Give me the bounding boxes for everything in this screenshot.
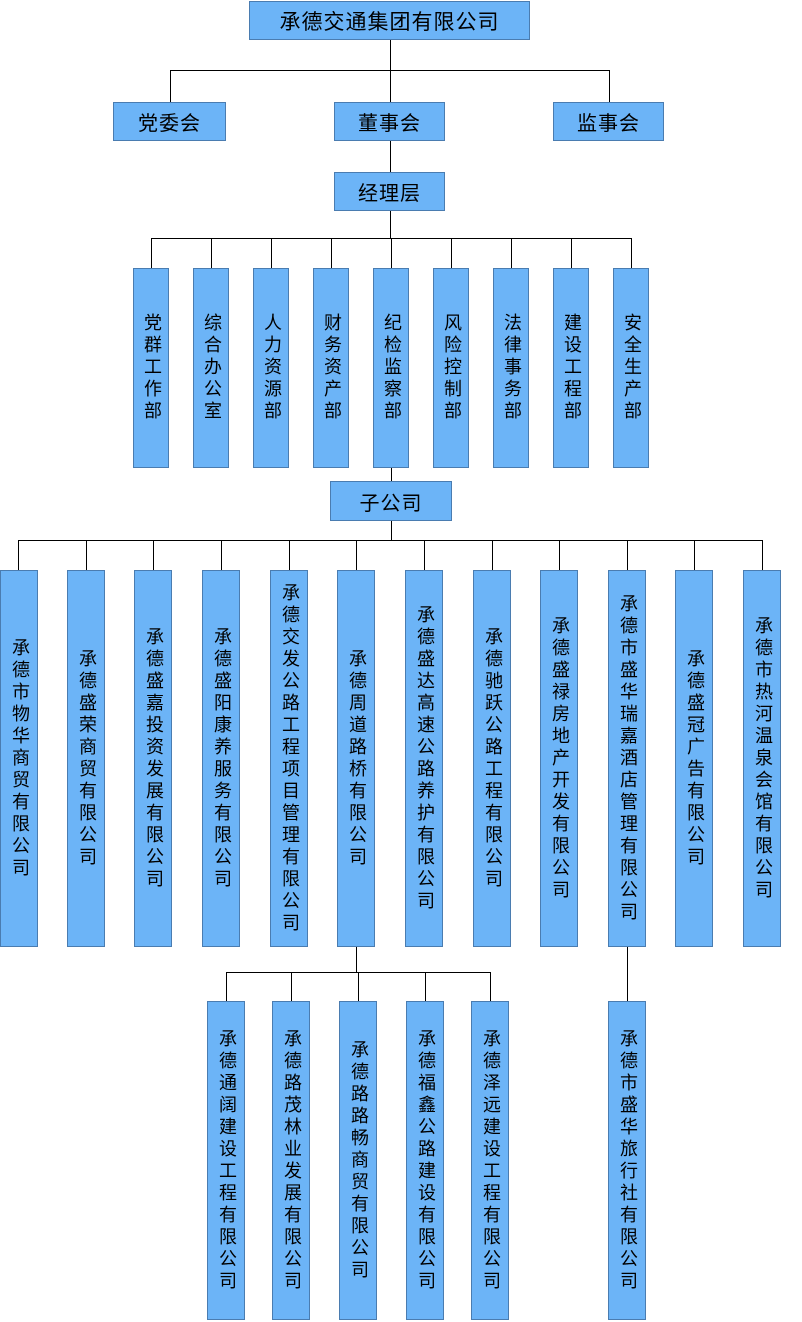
node-party-committee: 党委会 [113, 102, 226, 141]
node-child-luluchang: 承德路路畅商贸有限公司 [339, 1001, 377, 1320]
subsidiary-label: 承德盛嘉投资发展有限公司 [144, 627, 162, 891]
subsidiary-label: 承德盛达高速公路养护有限公司 [415, 605, 433, 913]
subsidiary-label: 承德盛冠广告有限公司 [685, 649, 703, 869]
dept-label: 建设工程部 [562, 313, 580, 423]
node-child-fuxin: 承德福鑫公路建设有限公司 [406, 1001, 444, 1320]
node-subsidiary-jiaofa: 承德交发公路工程项目管理有限公司 [270, 570, 308, 947]
node-subsidiary-shenghua-hotel: 承德市盛华瑞嘉酒店管理有限公司 [608, 570, 646, 947]
node-dept-legal: 法律事务部 [493, 268, 529, 468]
connector-to-subsidiaries-label [391, 468, 392, 481]
connector-dept-stub [211, 238, 212, 268]
connector-management-down [390, 211, 391, 238]
subsidiaries-label-text: 子公司 [360, 487, 423, 516]
node-root-label: 承德交通集团有限公司 [280, 6, 500, 36]
node-root: 承德交通集团有限公司 [249, 1, 530, 40]
node-subsidiary-wuhua: 承德市物华商贸有限公司 [0, 570, 38, 947]
node-subsidiary-shenglu: 承德盛禄房地产开发有限公司 [540, 570, 578, 947]
connector-sub-stub [289, 540, 290, 570]
node-subsidiary-shengyang: 承德盛阳康养服务有限公司 [202, 570, 240, 947]
node-management: 经理层 [334, 172, 445, 211]
node-subsidiary-rehe: 承德市热河温泉会馆有限公司 [743, 570, 781, 947]
node-dept-general-office: 综合办公室 [193, 268, 229, 468]
node-subsidiary-shengjia: 承德盛嘉投资发展有限公司 [134, 570, 172, 947]
connector-bottom-stub [425, 972, 426, 1001]
connector-sub-stub [221, 540, 222, 570]
node-dept-risk-control: 风险控制部 [433, 268, 469, 468]
node-subsidiary-chiyue: 承德驰跃公路工程有限公司 [473, 570, 511, 947]
connector-zhoudao-down [356, 947, 357, 972]
node-dept-safety: 安全生产部 [613, 268, 649, 468]
child-label: 承德福鑫公路建设有限公司 [416, 1029, 434, 1293]
connector-bottom-stub [490, 972, 491, 1001]
connector-sub-stub [762, 540, 763, 570]
node-subsidiaries-label: 子公司 [330, 481, 452, 521]
connector-sub-stub [627, 540, 628, 570]
connector-sub-stub [18, 540, 19, 570]
connector-bottom-stub [358, 972, 359, 1001]
connector-sub-stub [86, 540, 87, 570]
connector-dept-stub [391, 238, 392, 268]
connector-sub-stub [559, 540, 560, 570]
connector-sub-stub [694, 540, 695, 570]
connector-subsidiaries-rail [18, 540, 762, 541]
dept-label: 法律事务部 [502, 313, 520, 423]
node-dept-discipline: 纪检监察部 [373, 268, 409, 468]
connector-sub-stub [492, 540, 493, 570]
org-chart: 承德交通集团有限公司 党委会 董事会 监事会 经理层 党群工作部 综合办公室 人… [0, 0, 802, 1322]
connector-sub-stub [153, 540, 154, 570]
child-label: 承德路路畅商贸有限公司 [349, 1040, 367, 1282]
subsidiary-label: 承德驰跃公路工程有限公司 [483, 627, 501, 891]
child-label: 承德通阔建设工程有限公司 [217, 1029, 235, 1293]
connector-party-stub [170, 70, 171, 102]
connector-dept-stub [511, 238, 512, 268]
node-supervisory: 监事会 [553, 102, 664, 141]
node-child-tongkuo: 承德通阔建设工程有限公司 [207, 1001, 245, 1320]
connector-root-down [390, 40, 391, 102]
node-subsidiary-shengda: 承德盛达高速公路养护有限公司 [405, 570, 443, 947]
node-dept-hr: 人力资源部 [253, 268, 289, 468]
node-board-label: 董事会 [358, 107, 421, 136]
subsidiary-label: 承德市物华商贸有限公司 [10, 638, 28, 880]
connector-dept-stub [271, 238, 272, 268]
connector-bottom-stub [291, 972, 292, 1001]
subsidiary-label: 承德市盛华瑞嘉酒店管理有限公司 [618, 594, 636, 924]
child-label: 承德市盛华旅行社有限公司 [618, 1029, 636, 1293]
node-party-committee-label: 党委会 [138, 107, 201, 136]
connector-dept-stub [571, 238, 572, 268]
dept-label: 纪检监察部 [382, 313, 400, 423]
connector-subsidiaries-down [391, 521, 392, 540]
node-management-label: 经理层 [358, 177, 421, 206]
child-label: 承德泽远建设工程有限公司 [481, 1029, 499, 1293]
connector-board-management [390, 141, 391, 172]
subsidiary-label: 承德盛禄房地产开发有限公司 [550, 616, 568, 902]
node-subsidiary-zhoudao: 承德周道路桥有限公司 [337, 570, 375, 947]
node-child-zeyuan: 承德泽远建设工程有限公司 [471, 1001, 509, 1320]
dept-label: 综合办公室 [202, 313, 220, 423]
node-subsidiary-shengguan: 承德盛冠广告有限公司 [675, 570, 713, 947]
node-dept-finance-assets: 财务资产部 [313, 268, 349, 468]
connector-sub-stub [424, 540, 425, 570]
child-label: 承德路茂林业发展有限公司 [282, 1029, 300, 1293]
node-subsidiary-shengrong: 承德盛荣商贸有限公司 [67, 570, 105, 947]
node-child-travel-agency: 承德市盛华旅行社有限公司 [608, 1001, 646, 1320]
node-child-lumao: 承德路茂林业发展有限公司 [272, 1001, 310, 1320]
dept-label: 风险控制部 [442, 313, 460, 423]
connector-dept-stub [151, 238, 152, 268]
dept-label: 人力资源部 [262, 313, 280, 423]
subsidiary-label: 承德交发公路工程项目管理有限公司 [280, 583, 298, 935]
node-dept-construction: 建设工程部 [553, 268, 589, 468]
dept-label: 安全生产部 [622, 313, 640, 423]
subsidiary-label: 承德周道路桥有限公司 [347, 649, 365, 869]
connector-dept-stub [631, 238, 632, 268]
connector-bottom-stub [226, 972, 227, 1001]
connector-sub-stub [356, 540, 357, 570]
node-board: 董事会 [334, 102, 445, 141]
dept-label: 财务资产部 [322, 313, 340, 423]
connector-dept-stub [451, 238, 452, 268]
dept-label: 党群工作部 [142, 313, 160, 423]
connector-level2-rail [170, 70, 610, 71]
node-supervisory-label: 监事会 [577, 107, 640, 136]
subsidiary-label: 承德盛荣商贸有限公司 [77, 649, 95, 869]
connector-shenghua-travel [627, 947, 628, 1001]
node-dept-party-mass: 党群工作部 [133, 268, 169, 468]
connector-dept-stub [331, 238, 332, 268]
subsidiary-label: 承德市热河温泉会馆有限公司 [753, 616, 771, 902]
subsidiary-label: 承德盛阳康养服务有限公司 [212, 627, 230, 891]
connector-supervisory-stub [609, 70, 610, 102]
